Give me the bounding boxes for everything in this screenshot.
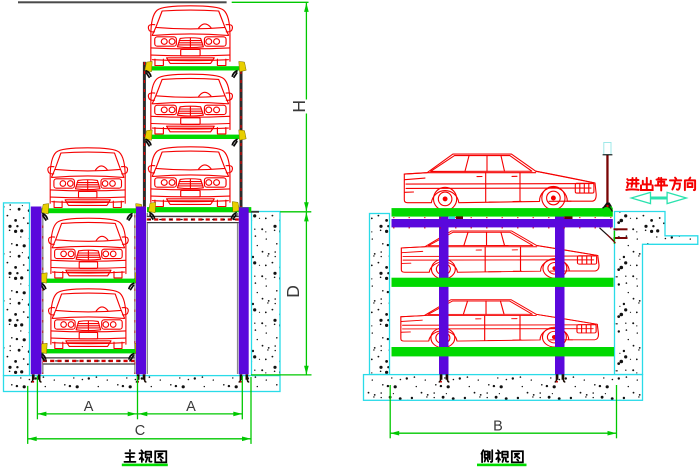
svg-text:A: A — [84, 399, 94, 415]
svg-text:A: A — [186, 399, 196, 415]
svg-text:D: D — [283, 285, 303, 298]
svg-text:H: H — [289, 100, 309, 113]
svg-text:B: B — [493, 419, 503, 435]
svg-text:C: C — [135, 423, 145, 439]
